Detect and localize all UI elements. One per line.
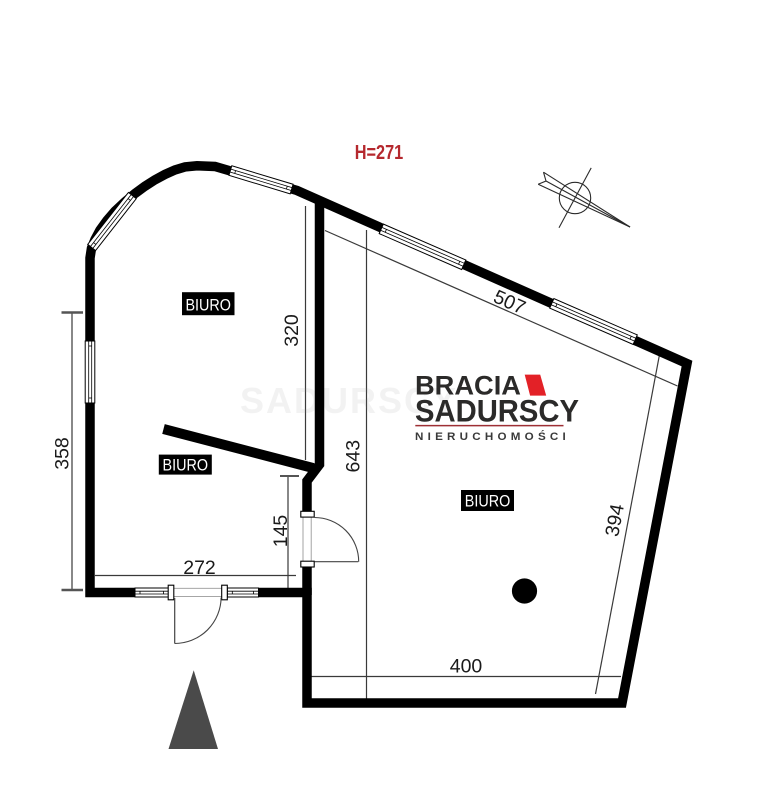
- svg-text:BIURO: BIURO: [163, 457, 209, 475]
- svg-text:643: 643: [343, 440, 365, 473]
- svg-text:NIERUCHOMOŚCI: NIERUCHOMOŚCI: [415, 430, 570, 443]
- svg-text:H=271: H=271: [355, 142, 404, 164]
- svg-text:272: 272: [183, 557, 216, 579]
- svg-text:320: 320: [281, 314, 303, 347]
- svg-text:145: 145: [270, 515, 292, 548]
- svg-text:SADURSCY: SADURSCY: [415, 392, 579, 428]
- svg-text:394: 394: [601, 502, 629, 538]
- svg-text:400: 400: [450, 656, 483, 678]
- svg-text:BIURO: BIURO: [185, 297, 231, 315]
- svg-text:BIURO: BIURO: [465, 493, 511, 511]
- svg-text:358: 358: [52, 437, 74, 470]
